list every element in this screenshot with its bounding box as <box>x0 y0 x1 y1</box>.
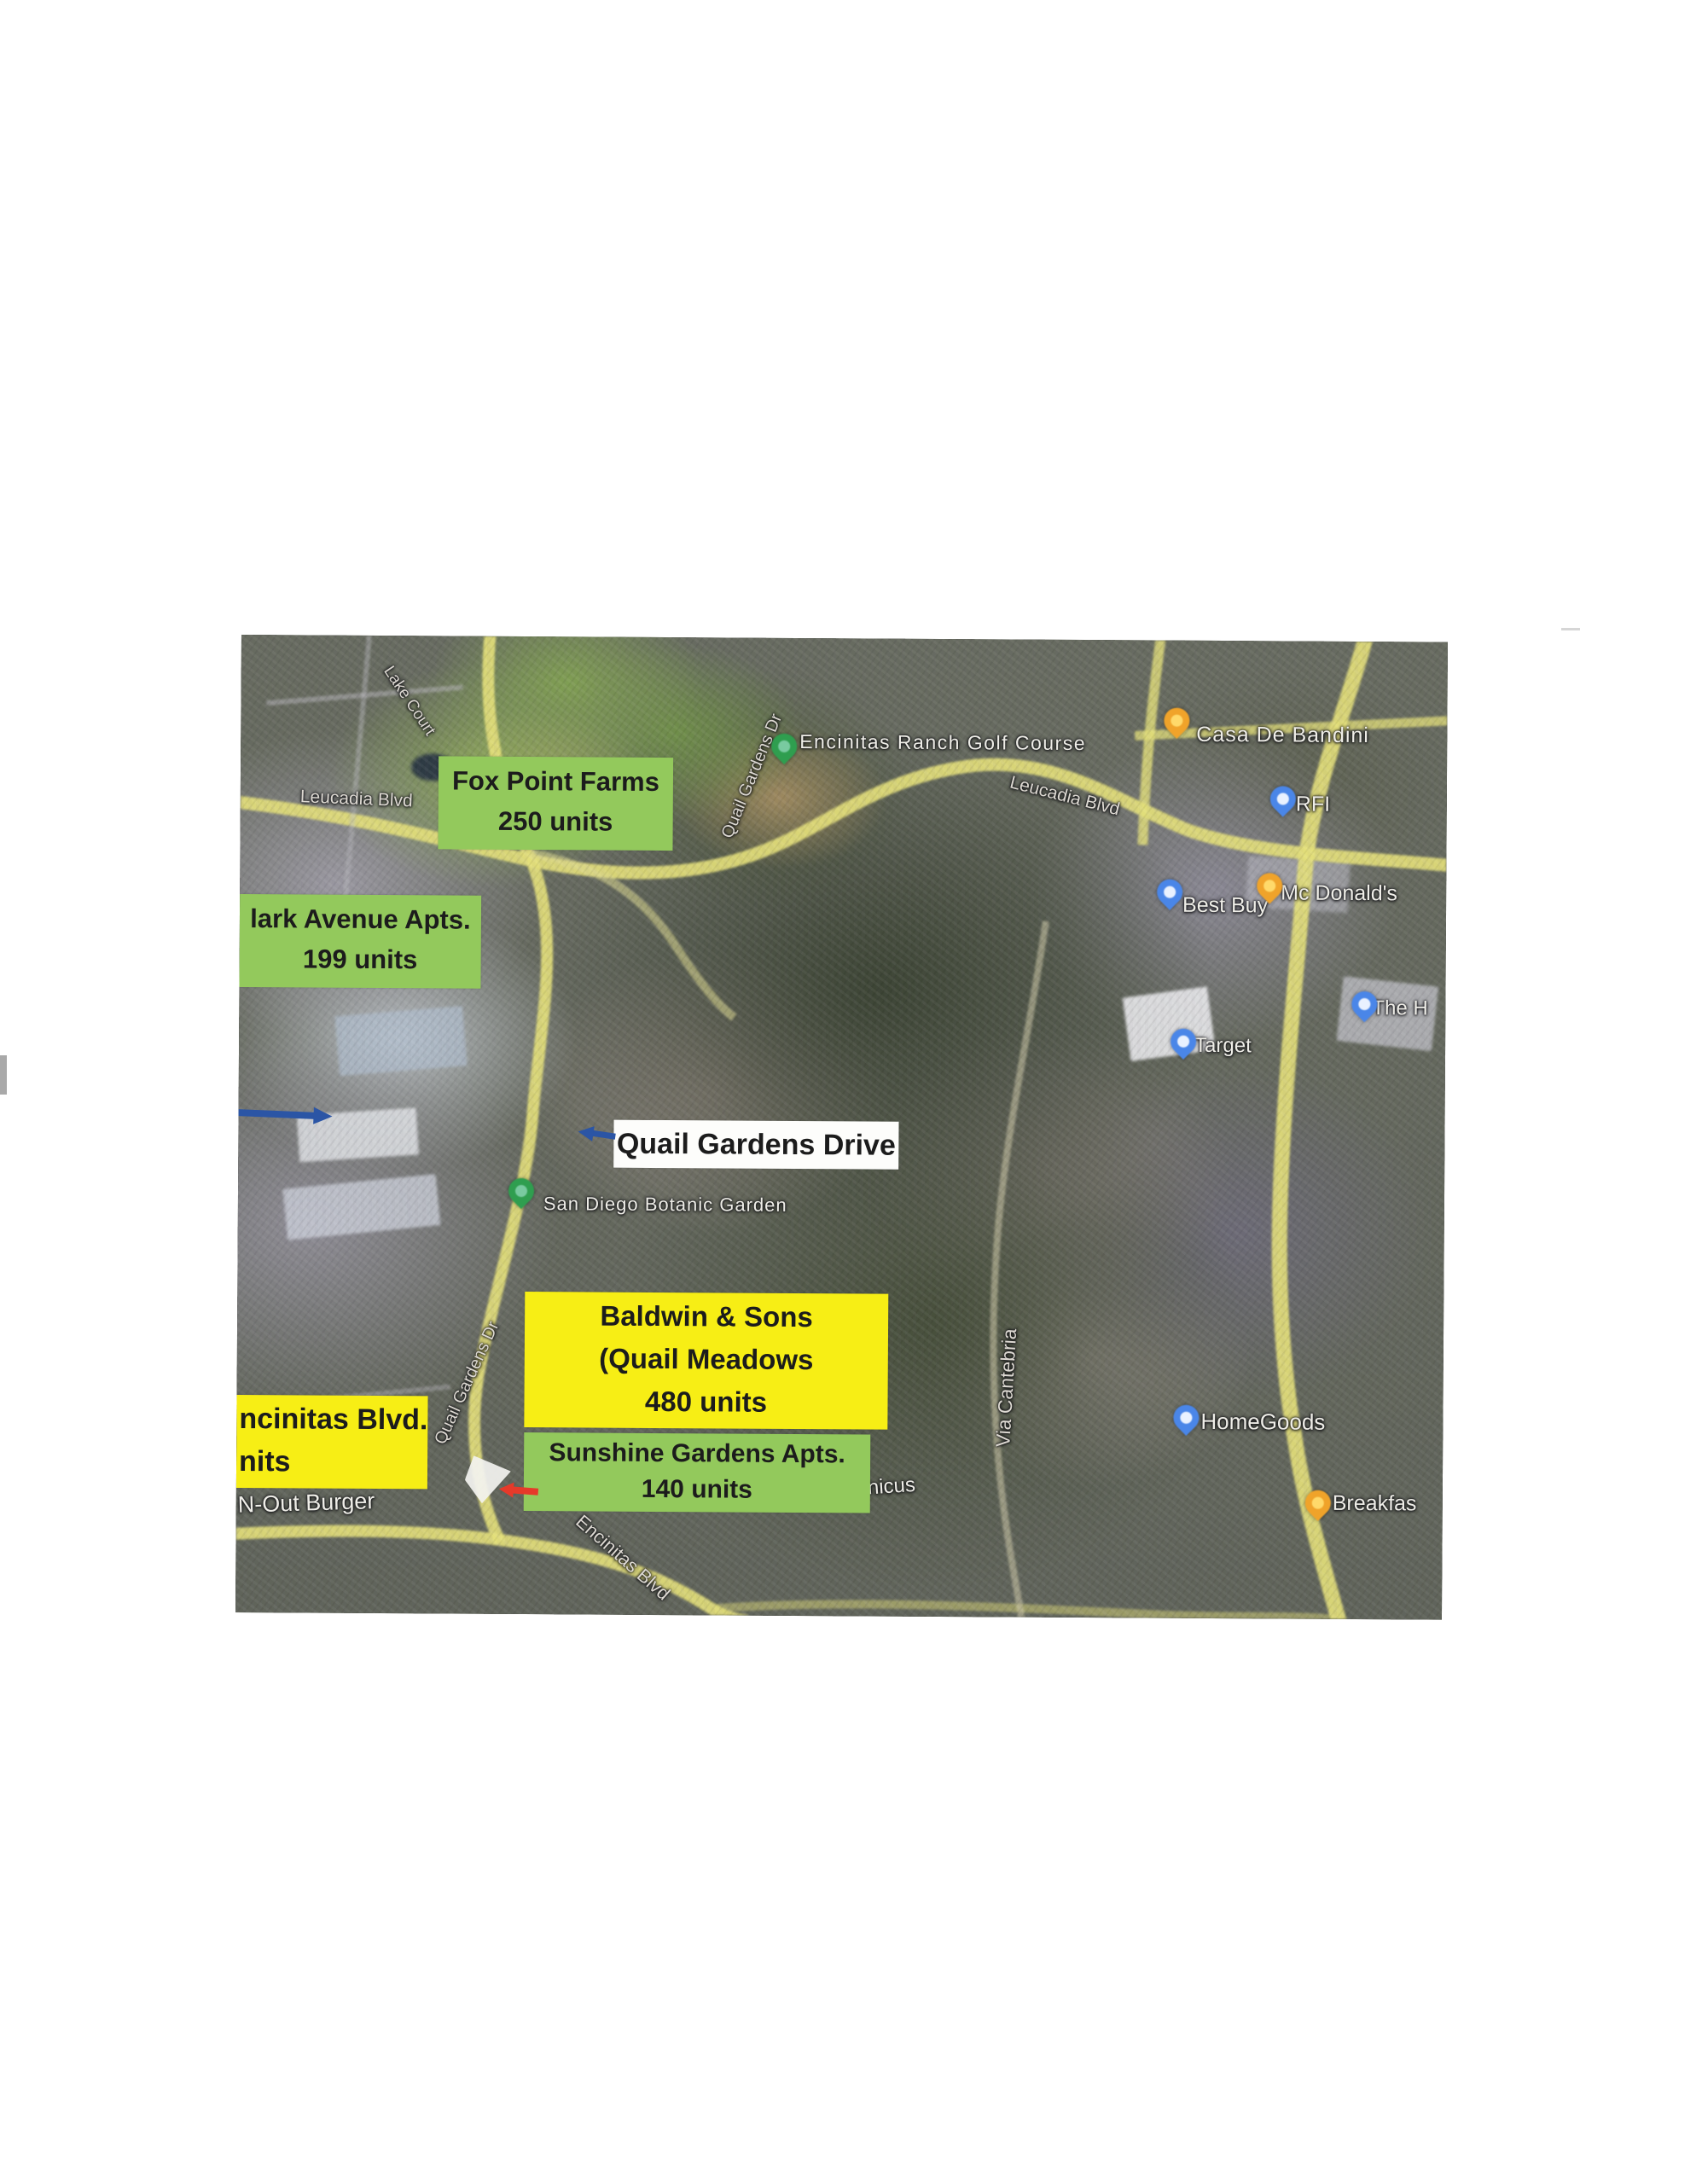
quail-gardens-drive-annotation: Quail Gardens Drive <box>613 1120 898 1170</box>
annotation-line: (Quail Meadows <box>525 1337 888 1382</box>
fox-point-farms-annotation: Fox Point Farms 250 units <box>438 756 673 851</box>
scan-artifact-top-right <box>1561 628 1580 630</box>
mcdonalds-label: Mc Donald's <box>1281 880 1397 906</box>
annotation-line: nits <box>239 1440 427 1484</box>
golf-course-label: Encinitas Ranch Golf Course <box>799 730 1086 755</box>
scanned-page: Encinitas Ranch Golf Course Leucadia Blv… <box>0 0 1702 2184</box>
aerial-map: Encinitas Ranch Golf Course Leucadia Blv… <box>235 635 1448 1620</box>
annotation-line: 140 units <box>524 1471 870 1508</box>
encinitas-blvd-annotation: ncinitas Blvd. nits <box>236 1395 428 1489</box>
red-arrow-left-icon <box>498 1481 538 1499</box>
casa-de-bandini-label: Casa De Bandini <box>1196 723 1369 748</box>
annotation-line: 480 units <box>524 1380 887 1425</box>
annotation-line: 250 units <box>439 800 673 842</box>
annotation-line: Baldwin & Sons <box>525 1294 888 1339</box>
home-depot-partial-label: The H <box>1372 996 1428 1020</box>
botanic-garden-label: San Diego Botanic Garden <box>543 1193 787 1217</box>
sunshine-gardens-annotation: Sunshine Gardens Apts. 140 units <box>524 1432 871 1513</box>
rfi-label: RFI <box>1296 793 1330 817</box>
clark-avenue-annotation: lark Avenue Apts. 199 units <box>239 894 481 989</box>
scan-artifact-left <box>0 1055 7 1095</box>
annotation-line: lark Avenue Apts. <box>240 898 481 940</box>
annotation-line: Fox Point Farms <box>439 760 673 802</box>
annotation-line: ncinitas Blvd. <box>239 1397 427 1441</box>
annotation-line: Quail Gardens Drive <box>613 1120 898 1170</box>
baldwin-sons-annotation: Baldwin & Sons (Quail Meadows 480 units <box>524 1292 888 1430</box>
best-buy-label: Best Buy <box>1182 893 1268 919</box>
in-n-out-partial-label: N-Out Burger <box>237 1488 375 1519</box>
target-label: Target <box>1194 1034 1252 1058</box>
annotation-line: 199 units <box>240 938 481 980</box>
annotation-line: Sunshine Gardens Apts. <box>524 1435 870 1472</box>
breakfast-partial-label: Breakfas <box>1333 1491 1417 1517</box>
homegoods-label: HomeGoods <box>1200 1409 1325 1436</box>
copernicus-partial-label: nicus <box>867 1473 916 1501</box>
